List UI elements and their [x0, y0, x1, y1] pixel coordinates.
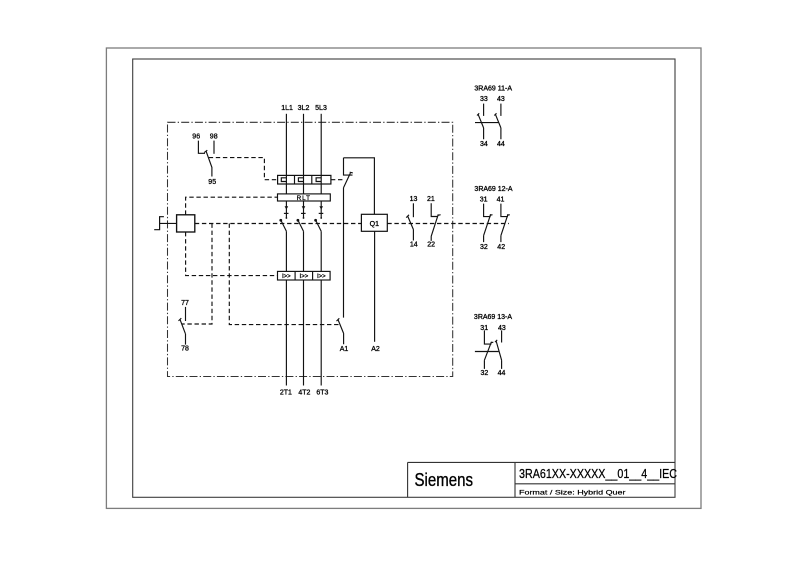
svg-text:I>>: I>>: [300, 274, 309, 280]
svg-text:Q1: Q1: [370, 221, 379, 228]
svg-text:Format / Size: Hybrid Quer: Format / Size: Hybrid Quer: [519, 489, 627, 496]
svg-text:6T3: 6T3: [316, 389, 328, 396]
svg-text:44: 44: [497, 141, 505, 148]
svg-text:3RA69 13-A: 3RA69 13-A: [474, 314, 512, 321]
svg-text:4T2: 4T2: [298, 389, 310, 396]
svg-text:96: 96: [192, 134, 200, 141]
svg-text:14: 14: [410, 242, 418, 249]
svg-text:77: 77: [181, 300, 189, 307]
svg-text:98: 98: [210, 134, 218, 141]
svg-text:43: 43: [498, 325, 506, 332]
svg-text:3L2: 3L2: [298, 105, 310, 112]
svg-text:I>>: I>>: [282, 274, 291, 280]
svg-text:2T1: 2T1: [280, 389, 292, 396]
svg-text:3RA69 12-A: 3RA69 12-A: [474, 186, 512, 193]
svg-text:42: 42: [497, 244, 505, 251]
svg-text:43: 43: [497, 96, 505, 103]
svg-text:95: 95: [208, 179, 216, 186]
svg-text:A2: A2: [371, 346, 380, 353]
svg-text:Siemens: Siemens: [415, 469, 474, 490]
svg-text:22: 22: [427, 242, 435, 249]
svg-text:21: 21: [427, 196, 435, 203]
svg-text:31: 31: [480, 325, 488, 332]
svg-text:32: 32: [480, 244, 488, 251]
svg-text:RLT: RLT: [297, 195, 311, 202]
svg-text:13: 13: [410, 196, 418, 203]
svg-text:5L3: 5L3: [315, 105, 327, 112]
svg-text:A1: A1: [340, 346, 349, 353]
svg-text:1L1: 1L1: [281, 105, 293, 112]
svg-text:78: 78: [181, 346, 189, 353]
svg-text:3RA69 11-A: 3RA69 11-A: [474, 85, 512, 92]
svg-text:33: 33: [480, 96, 488, 103]
svg-text:44: 44: [498, 370, 506, 377]
svg-text:I>>: I>>: [317, 274, 326, 280]
svg-text:41: 41: [497, 197, 505, 204]
svg-text:31: 31: [480, 197, 488, 204]
svg-text:32: 32: [481, 370, 489, 377]
svg-text:3RA61XX-XXXXX__01__4__IEC: 3RA61XX-XXXXX__01__4__IEC: [519, 466, 677, 481]
svg-text:34: 34: [480, 141, 488, 148]
